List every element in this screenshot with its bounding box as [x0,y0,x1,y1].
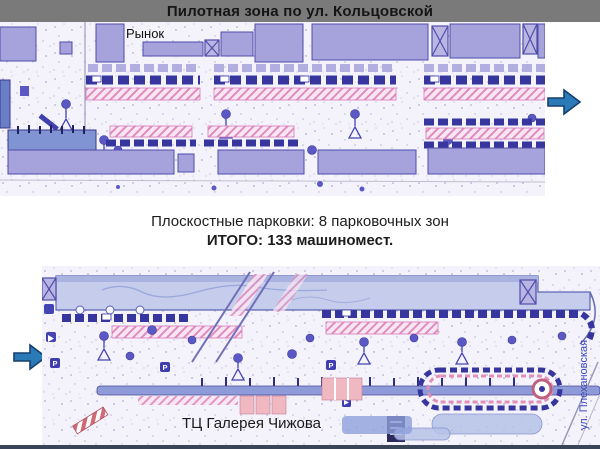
top-map: Рынок [0,22,545,196]
summary-block: Плоскостные парковки: 8 парковочных зон … [0,212,600,250]
svg-text:P: P [163,363,168,372]
title-bar: Пилотная зона по ул. Кольцовской [0,0,600,22]
mall-label: ТЦ Галерея Чижова [182,415,322,432]
bottom-map: P P P [42,266,600,445]
slide: Пилотная зона по ул. Кольцовской [0,0,600,449]
market-label: Рынок [126,26,164,41]
buildings-lower-row [8,148,545,174]
svg-text:P: P [329,361,334,370]
summary-line1: Плоскостные парковки: 8 парковочных зон [0,212,600,231]
svg-text:P: P [53,359,58,368]
page-title: Пилотная зона по ул. Кольцовской [167,3,433,20]
arrow-right-icon [546,88,582,116]
summary-line2: ИТОГО: 133 машиномест. [0,231,600,250]
slide-bottom-border [0,445,600,449]
street-label: ул. Плехановская [578,340,590,430]
